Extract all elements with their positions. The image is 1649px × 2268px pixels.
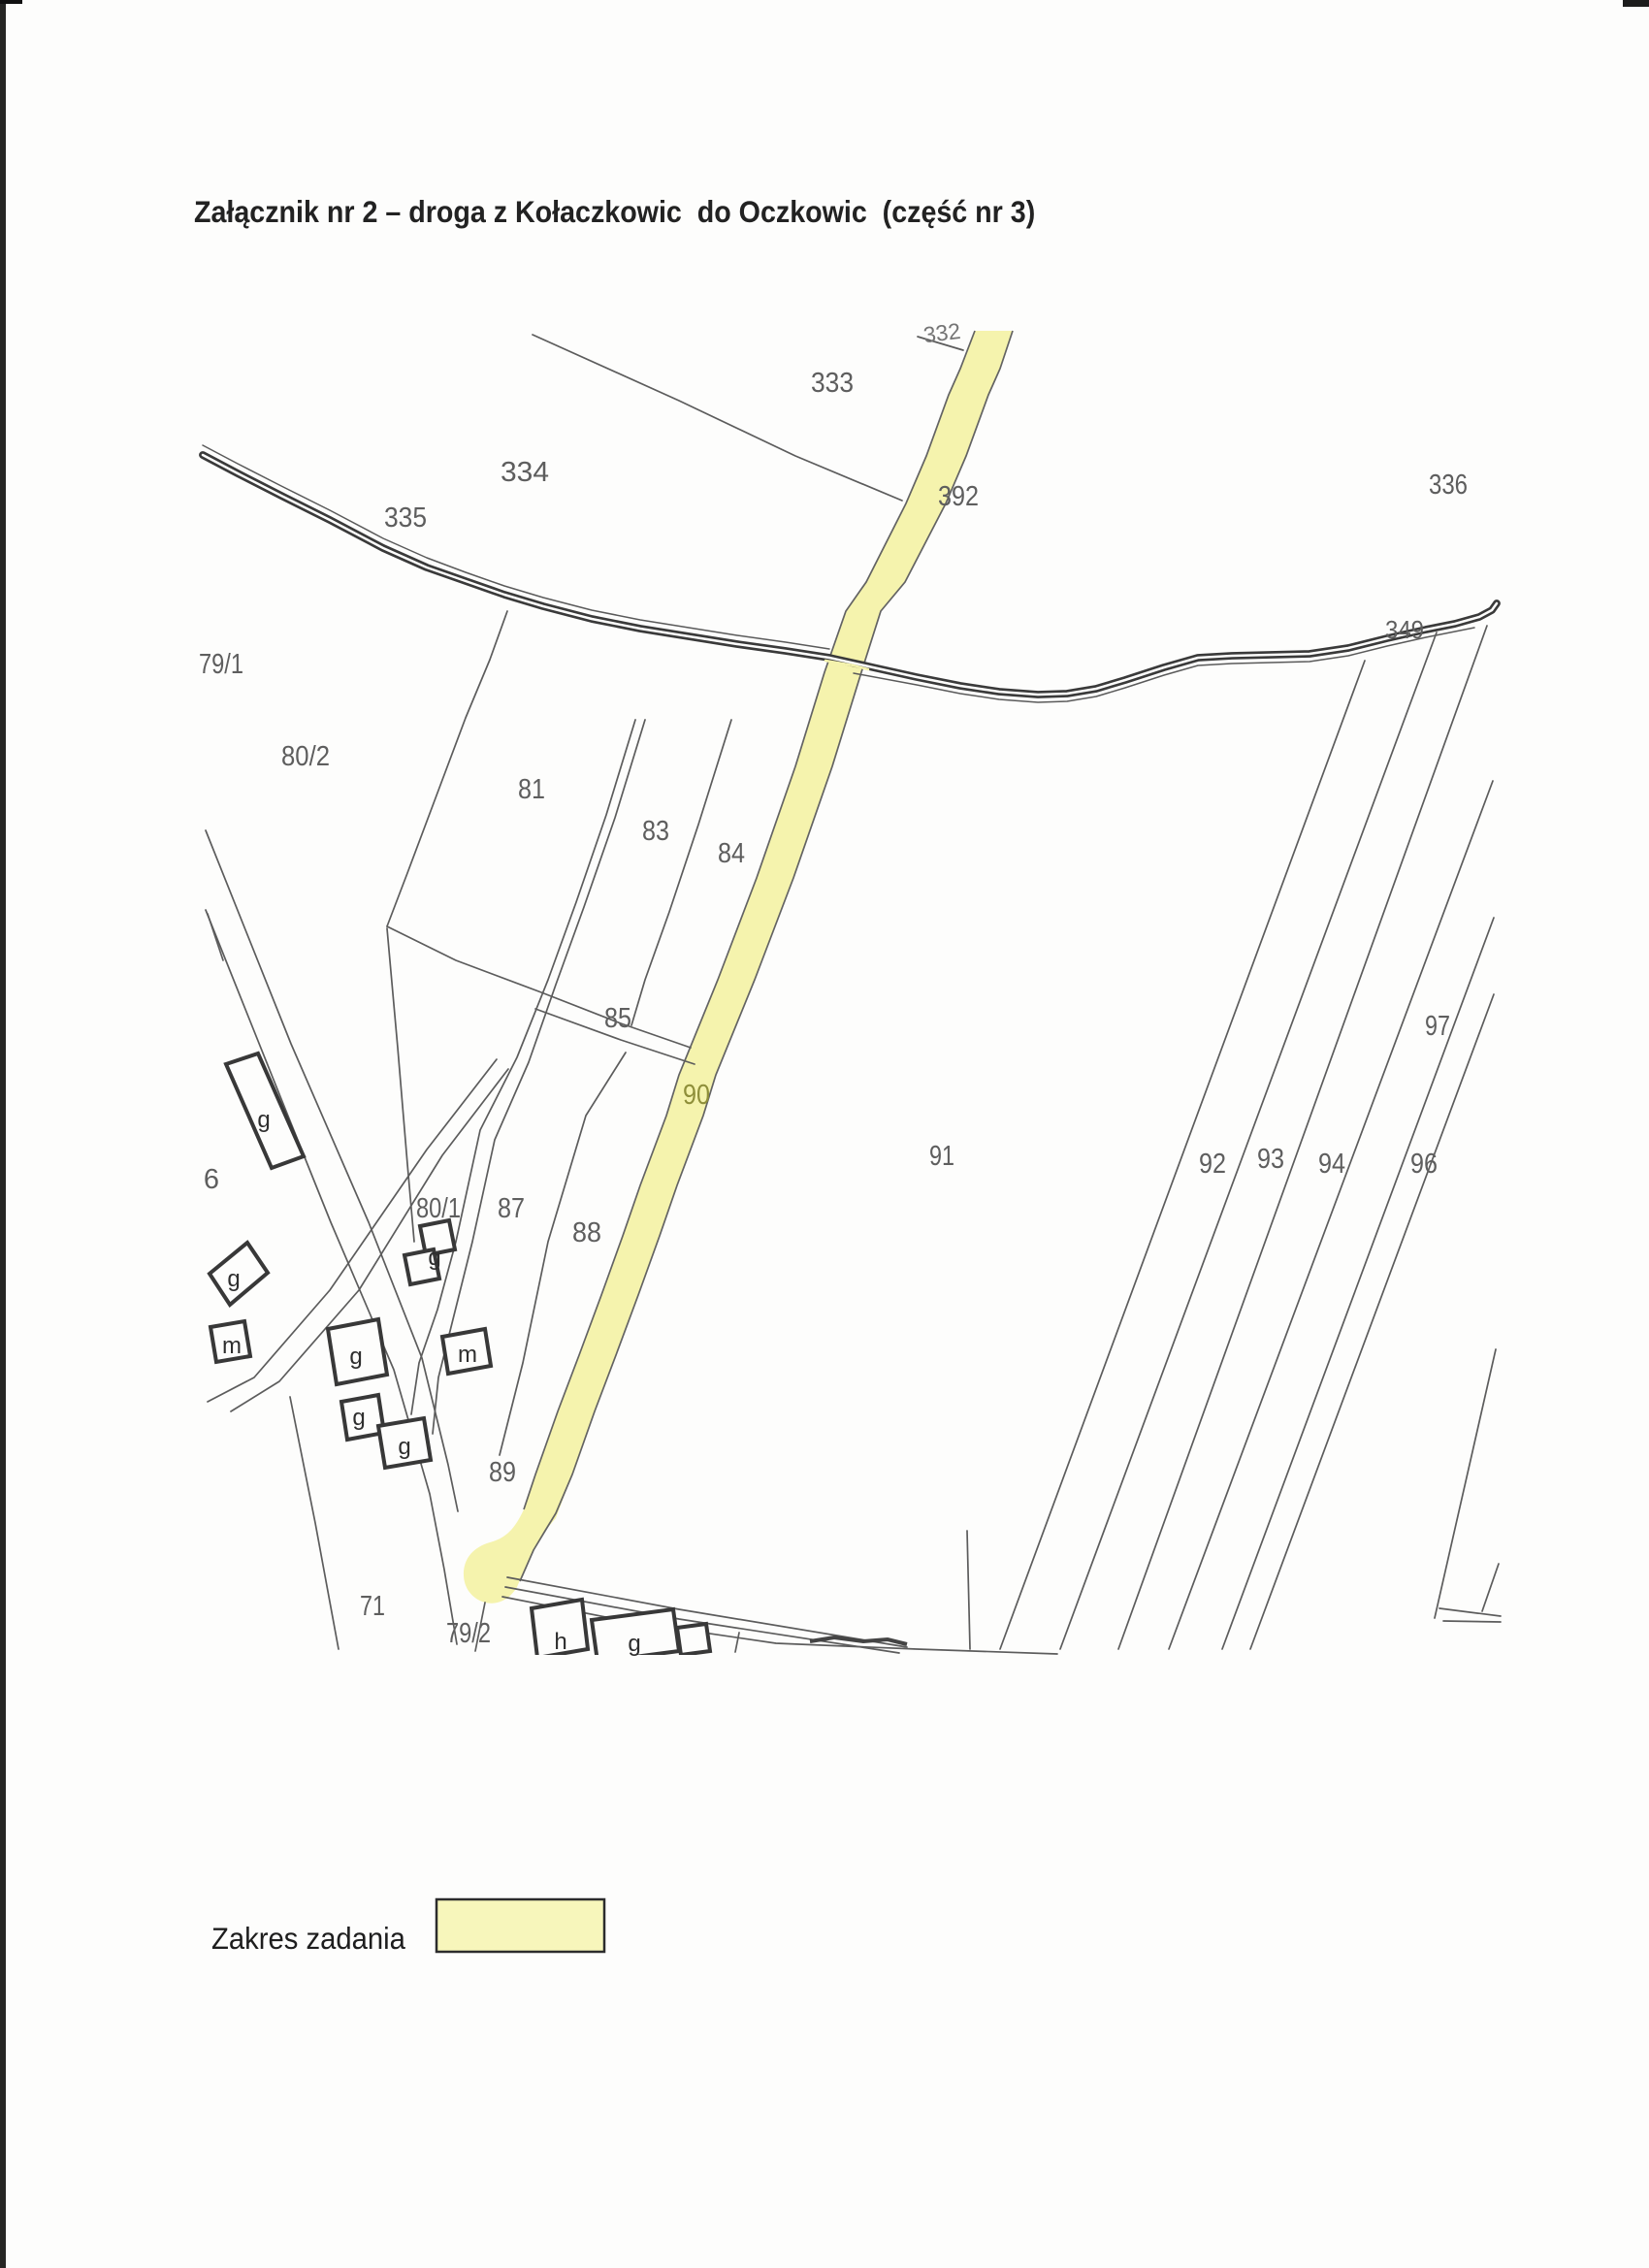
svg-text:90: 90 [683, 1080, 710, 1111]
svg-text:335: 335 [384, 502, 427, 534]
svg-text:94: 94 [1318, 1149, 1345, 1180]
svg-text:93: 93 [1257, 1144, 1284, 1175]
svg-text:92: 92 [1199, 1149, 1226, 1180]
svg-text:g: g [257, 1107, 270, 1133]
svg-text:87: 87 [498, 1193, 525, 1224]
svg-text:g: g [349, 1344, 362, 1370]
svg-text:h: h [554, 1629, 566, 1655]
svg-text:6: 6 [204, 1164, 219, 1195]
svg-text:71: 71 [360, 1591, 385, 1622]
svg-text:334: 334 [501, 457, 549, 488]
svg-text:79/2: 79/2 [446, 1618, 491, 1649]
svg-text:97: 97 [1425, 1011, 1450, 1042]
svg-text:80/1: 80/1 [416, 1193, 461, 1224]
svg-text:392: 392 [938, 481, 979, 512]
svg-text:81: 81 [518, 774, 545, 805]
svg-text:g: g [227, 1266, 240, 1292]
svg-text:83: 83 [642, 816, 669, 847]
svg-text:m: m [222, 1333, 242, 1359]
svg-text:96: 96 [1410, 1149, 1438, 1180]
svg-text:349: 349 [1385, 615, 1424, 644]
svg-text:333: 333 [811, 368, 854, 399]
svg-text:332: 332 [921, 318, 961, 347]
svg-text:88: 88 [572, 1217, 601, 1248]
svg-text:g: g [628, 1631, 640, 1657]
svg-text:85: 85 [604, 1003, 631, 1034]
svg-text:89: 89 [489, 1457, 516, 1488]
svg-text:84: 84 [718, 838, 745, 869]
svg-text:80/2: 80/2 [281, 741, 330, 772]
svg-text:g: g [352, 1405, 365, 1431]
svg-text:79/1: 79/1 [199, 649, 243, 680]
svg-text:91: 91 [929, 1141, 954, 1172]
svg-text:336: 336 [1429, 470, 1468, 501]
svg-text:g: g [398, 1434, 410, 1460]
svg-text:g: g [428, 1245, 440, 1271]
svg-text:m: m [458, 1342, 477, 1368]
